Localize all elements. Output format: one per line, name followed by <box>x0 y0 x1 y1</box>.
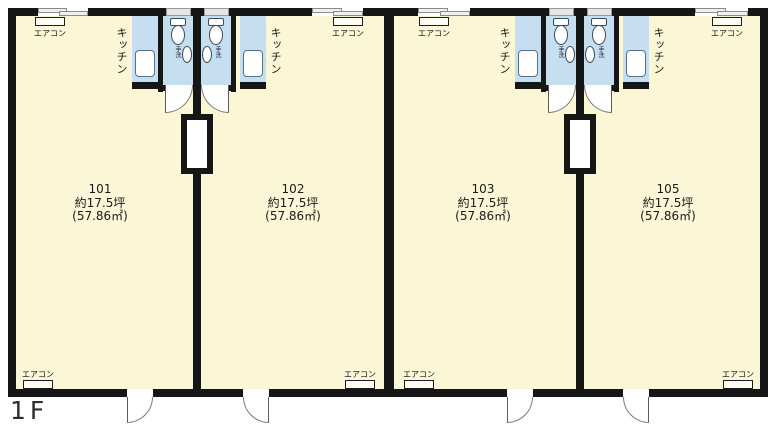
kitchen-label-102: キッチン <box>267 27 283 91</box>
window-105 <box>695 8 748 16</box>
wc-door-jamb-105 <box>612 85 619 91</box>
handwash-basin-102 <box>202 46 212 63</box>
window-pane <box>717 11 748 16</box>
aircon-unit <box>345 380 375 389</box>
handwash-label: 手洗 <box>596 46 605 66</box>
kitchen-wall-105 <box>623 82 649 89</box>
unit-area-m2: (57.86㎡) <box>40 210 160 224</box>
kitchen-label-105: キッチン <box>650 27 666 91</box>
wc-window-103 <box>549 8 574 16</box>
aircon-label: エアコン <box>338 369 382 380</box>
entrance-opening-105 <box>623 389 649 397</box>
divider-wall-103-105 <box>576 16 584 389</box>
kitchen-label-103: キッチン <box>496 27 512 91</box>
wc-window-105 <box>587 8 612 16</box>
window-pane <box>333 11 363 16</box>
unit-area-m2: (57.86㎡) <box>423 210 543 224</box>
unit-area-tsubo: 約17.5坪 <box>233 197 353 211</box>
divider-wall-102-103 <box>384 16 394 389</box>
aircon-unit <box>404 380 434 389</box>
handwash-label: 手洗 <box>173 46 182 66</box>
unit-102-label: 102 約17.5坪 (57.86㎡) <box>233 183 353 224</box>
toilet-bowl-105 <box>592 25 606 45</box>
toilet-bowl-101 <box>171 25 185 45</box>
window-pane <box>440 11 470 16</box>
aircon-unit <box>333 17 363 26</box>
aircon-label: エアコン <box>326 28 370 39</box>
kitchen-wall-101 <box>132 82 158 89</box>
window-101 <box>38 8 88 16</box>
aircon-label: エアコン <box>16 369 60 380</box>
wc-window-102 <box>204 8 229 16</box>
unit-area-m2: (57.86㎡) <box>608 210 728 224</box>
aircon-unit <box>35 17 65 26</box>
floorplan-canvas: 手洗 手洗 キッチン キッチン 手洗 手洗 キッチン キッチン エアコン エアコ… <box>0 0 780 432</box>
handwash-label: 手洗 <box>556 46 565 66</box>
unit-area-tsubo: 約17.5坪 <box>608 197 728 211</box>
pipe-shaft-103-105 <box>564 114 596 174</box>
aircon-unit <box>419 17 449 26</box>
unit-number: 102 <box>233 183 353 197</box>
aircon-label: エアコン <box>28 28 72 39</box>
handwash-basin-103 <box>565 46 575 63</box>
entrance-opening-102 <box>243 389 269 397</box>
window-102 <box>312 8 363 16</box>
aircon-label: エアコン <box>705 28 749 39</box>
unit-101-label: 101 約17.5坪 (57.86㎡) <box>40 183 160 224</box>
entrance-door-101 <box>127 397 153 423</box>
wc-window-101 <box>166 8 191 16</box>
aircon-label: エアコン <box>397 369 441 380</box>
entrance-door-102 <box>243 397 269 423</box>
kitchen-sink-105 <box>626 50 646 77</box>
unit-number: 103 <box>423 183 543 197</box>
kitchen-wall-103 <box>515 82 541 89</box>
unit-103-label: 103 約17.5坪 (57.86㎡) <box>423 183 543 224</box>
pipe-shaft-101-102 <box>181 114 213 174</box>
wc-door-jamb-102 <box>229 85 236 91</box>
aircon-unit <box>723 380 753 389</box>
unit-number: 101 <box>40 183 160 197</box>
kitchen-sink-103 <box>518 50 538 77</box>
wc-wall-105 <box>614 16 619 92</box>
wc-wall-102 <box>231 16 236 92</box>
toilet-bowl-102 <box>209 25 223 45</box>
aircon-unit <box>23 380 53 389</box>
window-pane <box>59 11 88 16</box>
kitchen-label-101: キッチン <box>113 27 129 91</box>
kitchen-sink-102 <box>243 50 263 77</box>
entrance-opening-101 <box>127 389 153 397</box>
aircon-label: エアコン <box>412 28 456 39</box>
floor-label: 1F <box>10 398 48 423</box>
unit-area-tsubo: 約17.5坪 <box>423 197 543 211</box>
kitchen-wall-102 <box>240 82 266 89</box>
wc-door-jamb-103 <box>541 85 548 91</box>
entrance-door-105 <box>623 397 649 423</box>
aircon-label: エアコン <box>716 369 760 380</box>
handwash-basin-105 <box>585 46 595 63</box>
unit-area-m2: (57.86㎡) <box>233 210 353 224</box>
kitchen-sink-101 <box>135 50 155 77</box>
handwash-basin-101 <box>182 46 192 63</box>
entrance-opening-103 <box>507 389 533 397</box>
aircon-unit <box>712 17 742 26</box>
window-103 <box>418 8 470 16</box>
wc-door-jamb-101 <box>158 85 165 91</box>
entrance-door-103 <box>507 397 533 423</box>
divider-wall-101-102 <box>193 16 201 389</box>
unit-number: 105 <box>608 183 728 197</box>
toilet-bowl-103 <box>554 25 568 45</box>
unit-105-label: 105 約17.5坪 (57.86㎡) <box>608 183 728 224</box>
handwash-label: 手洗 <box>213 46 222 66</box>
unit-area-tsubo: 約17.5坪 <box>40 197 160 211</box>
